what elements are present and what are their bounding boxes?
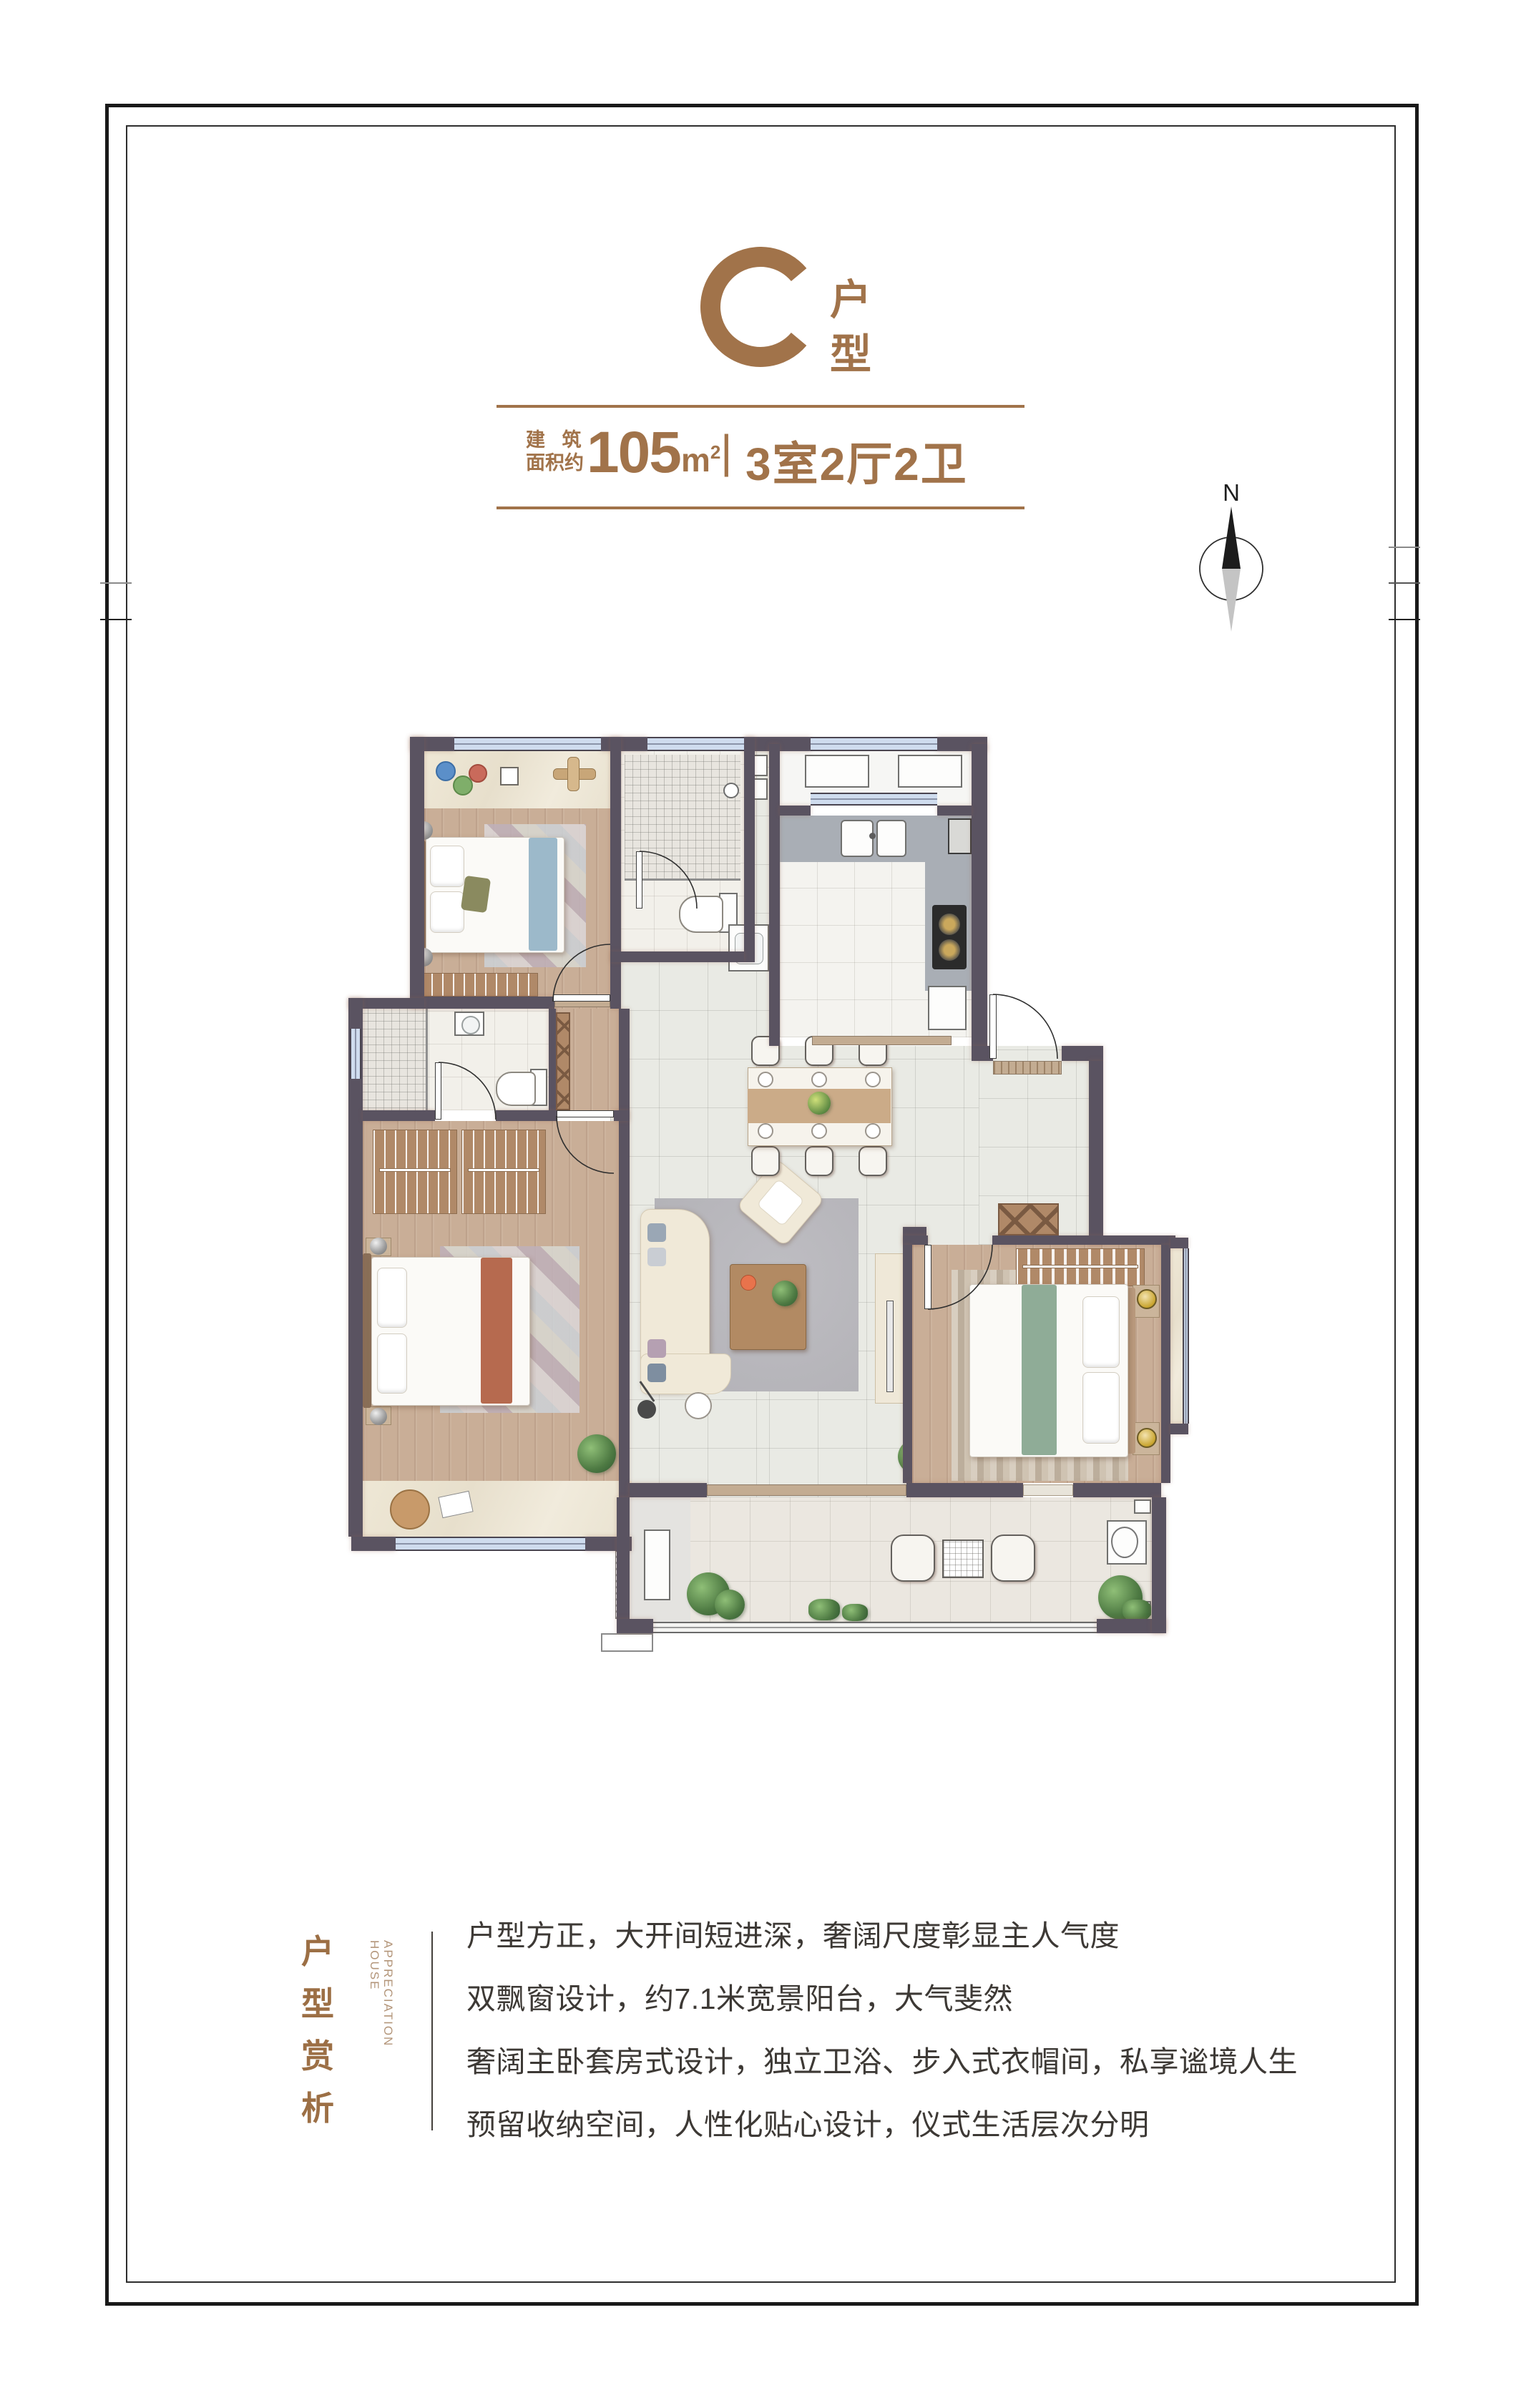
wall [1161, 1245, 1170, 1483]
unit-type-label: 户 型 [828, 273, 873, 382]
section-title-char: 析 [300, 2082, 335, 2135]
footer-divider [431, 1932, 433, 2130]
poster-page: C 户 型 建 筑 面积约 105 m2 | 3室2厅2卫 N N [0, 0, 1521, 2408]
bedroom2-wardrobe [420, 973, 538, 997]
master-headboard [363, 1253, 371, 1408]
wall [903, 1245, 912, 1483]
wall [1062, 1046, 1103, 1061]
balcony-plant [808, 1599, 840, 1620]
door-leaf-bathroom2 [636, 851, 642, 909]
sofa-cushion [647, 1223, 666, 1242]
toy-clock [500, 767, 519, 785]
door-leaf-master-bath [435, 1062, 441, 1120]
wall [351, 1537, 396, 1551]
bedroom3-pillow [1082, 1296, 1120, 1368]
toilet-bowl [679, 896, 723, 933]
window [454, 737, 601, 751]
bedroom-balcony-sill [1023, 1484, 1073, 1496]
balcony-threshold [707, 1484, 906, 1496]
header-rule-top [497, 405, 1024, 408]
floor-lamp-base [637, 1400, 656, 1419]
master-shower-floor [360, 1007, 426, 1116]
shoe-cabinet [998, 1203, 1059, 1235]
area-number: 105 [587, 425, 680, 481]
master-bay-window [396, 1537, 585, 1551]
coffee-table-plant [772, 1281, 798, 1306]
floor-drain [1134, 1499, 1151, 1514]
section-subtitle-line: HOUSE [368, 1940, 381, 2112]
area-prefix-line1: 建 筑 [526, 429, 582, 451]
description-line-4: 预留收纳空间，人性化贴心设计，仪式生活层次分明 [466, 2109, 1150, 2140]
wall [906, 1483, 1023, 1497]
window [811, 737, 937, 751]
wall [937, 806, 972, 816]
bedside-lamp [370, 1238, 387, 1255]
ottoman [685, 1392, 712, 1419]
wall [744, 737, 755, 962]
unit-type-char-1: 户 [828, 273, 873, 328]
wall [619, 1009, 630, 1497]
wall [1152, 1497, 1166, 1633]
header-rule-bottom [497, 506, 1024, 509]
wall [496, 1110, 557, 1121]
door-leaf-entry [989, 994, 997, 1059]
wall [617, 1619, 653, 1633]
wardrobe-rod [1023, 1266, 1138, 1268]
master-pillow [377, 1333, 407, 1394]
wall [992, 1235, 1175, 1245]
separator-bar: | [720, 425, 733, 478]
place-setting [811, 1123, 827, 1139]
bedroom2-cushion [461, 876, 491, 914]
wall [1073, 1483, 1161, 1497]
table-flowers [808, 1092, 831, 1115]
ac-unit [805, 755, 869, 788]
wall [1170, 1424, 1188, 1434]
description-line-3: 奢阔主卧套房式设计，独立卫浴、步入式衣帽间，私享谧境人生 [466, 2046, 1298, 2077]
place-setting [865, 1072, 881, 1087]
bedroom2-pillow [430, 891, 464, 933]
faucet-dot [869, 833, 876, 839]
wall [410, 737, 424, 1009]
balcony-plant [715, 1590, 745, 1620]
sofa-cushion [647, 1339, 666, 1358]
wall [1170, 1238, 1188, 1248]
wardrobe-rod [469, 1169, 539, 1171]
window [647, 737, 744, 751]
vanity-basin [461, 1016, 480, 1034]
unit-letter-c-ring [700, 247, 822, 368]
wall [780, 806, 811, 816]
place-setting [811, 1072, 827, 1087]
bedroom3-bed-runner [1022, 1285, 1057, 1455]
bedroom3-bay-ledge [1170, 1248, 1183, 1424]
entry-threshold [993, 1061, 1062, 1075]
kitchen-sink-basin [841, 820, 874, 857]
area-unit-exponent: 2 [710, 441, 720, 463]
burner [939, 914, 960, 935]
rooms-layout-text: 3室2厅2卫 [745, 428, 968, 494]
wall [1089, 1061, 1103, 1245]
wall [903, 1235, 928, 1245]
wall [610, 737, 621, 1009]
balcony-railing [653, 1622, 1097, 1633]
wall [769, 744, 780, 1046]
shower-head-icon [723, 783, 739, 798]
bedside-lamp [1137, 1289, 1157, 1309]
toy-plate-red [469, 764, 487, 783]
balcony-plant [1123, 1600, 1151, 1621]
section-title-vertical: 户 型 赏 析 [300, 1926, 335, 2135]
section-title-char: 户 [300, 1926, 335, 1978]
coffee-table [730, 1264, 806, 1350]
compass-label: N [1223, 479, 1240, 506]
wall [617, 1497, 630, 1619]
window [811, 793, 937, 806]
dining-chair [859, 1146, 887, 1176]
sofa-cushion [647, 1364, 666, 1382]
section-title-char: 型 [300, 1978, 335, 2030]
description-line-2: 双飘窗设计，约7.1米宽景阳台，大气斐然 [466, 1983, 1013, 2015]
balcony-table [942, 1540, 984, 1578]
bedside-lamp [1137, 1428, 1157, 1448]
toy-airplane-wing [567, 757, 579, 791]
wall [424, 997, 554, 1009]
place-setting [865, 1123, 881, 1139]
master-pillow [377, 1268, 407, 1328]
place-setting [758, 1072, 773, 1087]
floor-plan [348, 737, 1196, 1660]
unit-type-char-2: 型 [828, 328, 873, 382]
registration-tick [100, 582, 132, 584]
kitchen-counter-top [780, 816, 972, 862]
closet-cabinet [556, 1012, 570, 1110]
balcony-step [601, 1633, 653, 1652]
bedside-lamp [370, 1408, 387, 1425]
dining-chair [751, 1146, 780, 1176]
kitchen-appliance [948, 818, 972, 854]
balcony-chair [891, 1535, 935, 1582]
burner [939, 939, 960, 961]
dining-chair [805, 1146, 833, 1176]
area-prefix-line2: 面积约 [526, 452, 584, 474]
bedroom3-pillow [1082, 1372, 1120, 1444]
master-wardrobe-rack [461, 1130, 546, 1214]
door-leaf-master-bedroom [557, 1110, 614, 1117]
kitchen-sink-basin [876, 820, 906, 857]
compass-north-icon: N [1188, 465, 1276, 644]
window [350, 1029, 361, 1079]
wall [363, 1110, 435, 1121]
door-leaf-bedroom3 [924, 1245, 931, 1309]
place-setting [758, 1123, 773, 1139]
wall [610, 951, 744, 962]
wardrobe-rod [380, 1169, 450, 1171]
wall [972, 744, 987, 1046]
bedroom2-bed-runner [529, 838, 557, 951]
shower-glass-line [426, 1007, 428, 1116]
section-title-char: 赏 [300, 2030, 335, 2082]
toilet-bowl [496, 1072, 536, 1106]
fruit-bowl [740, 1275, 756, 1291]
wall [601, 737, 647, 751]
bedroom3-bay-window [1183, 1248, 1189, 1424]
wall [549, 1009, 556, 1116]
ac-unit [898, 755, 962, 788]
balcony-plant [842, 1604, 868, 1621]
area-unit: m [681, 441, 710, 479]
fridge [928, 986, 967, 1030]
master-wardrobe-rack [373, 1130, 457, 1214]
kitchen-threshold [812, 1036, 952, 1045]
sofa-cushion [647, 1248, 666, 1266]
door-leaf-bedroom2 [553, 994, 610, 1002]
master-bed-runner [481, 1258, 512, 1404]
section-subtitle: HOUSE APPRECIATION [368, 1940, 395, 2112]
section-subtitle-line: APPRECIATION [381, 1940, 395, 2112]
description-line-1: 户型方正，大开间短进深，奢阔尺度彰显主人气度 [466, 1920, 1120, 1952]
registration-tick [1389, 547, 1420, 548]
balcony-chair [991, 1535, 1035, 1582]
wall [614, 1110, 630, 1121]
bedroom2-pillow [430, 846, 464, 887]
registration-tick [100, 619, 132, 620]
wall [630, 1483, 707, 1497]
toy-plate-blue [436, 761, 456, 781]
registration-tick [1389, 619, 1420, 620]
plant [577, 1434, 616, 1473]
tv-panel [886, 1301, 894, 1392]
balcony-cabinet [644, 1530, 670, 1600]
registration-tick [1389, 582, 1420, 584]
bay-snack-table [390, 1489, 430, 1530]
